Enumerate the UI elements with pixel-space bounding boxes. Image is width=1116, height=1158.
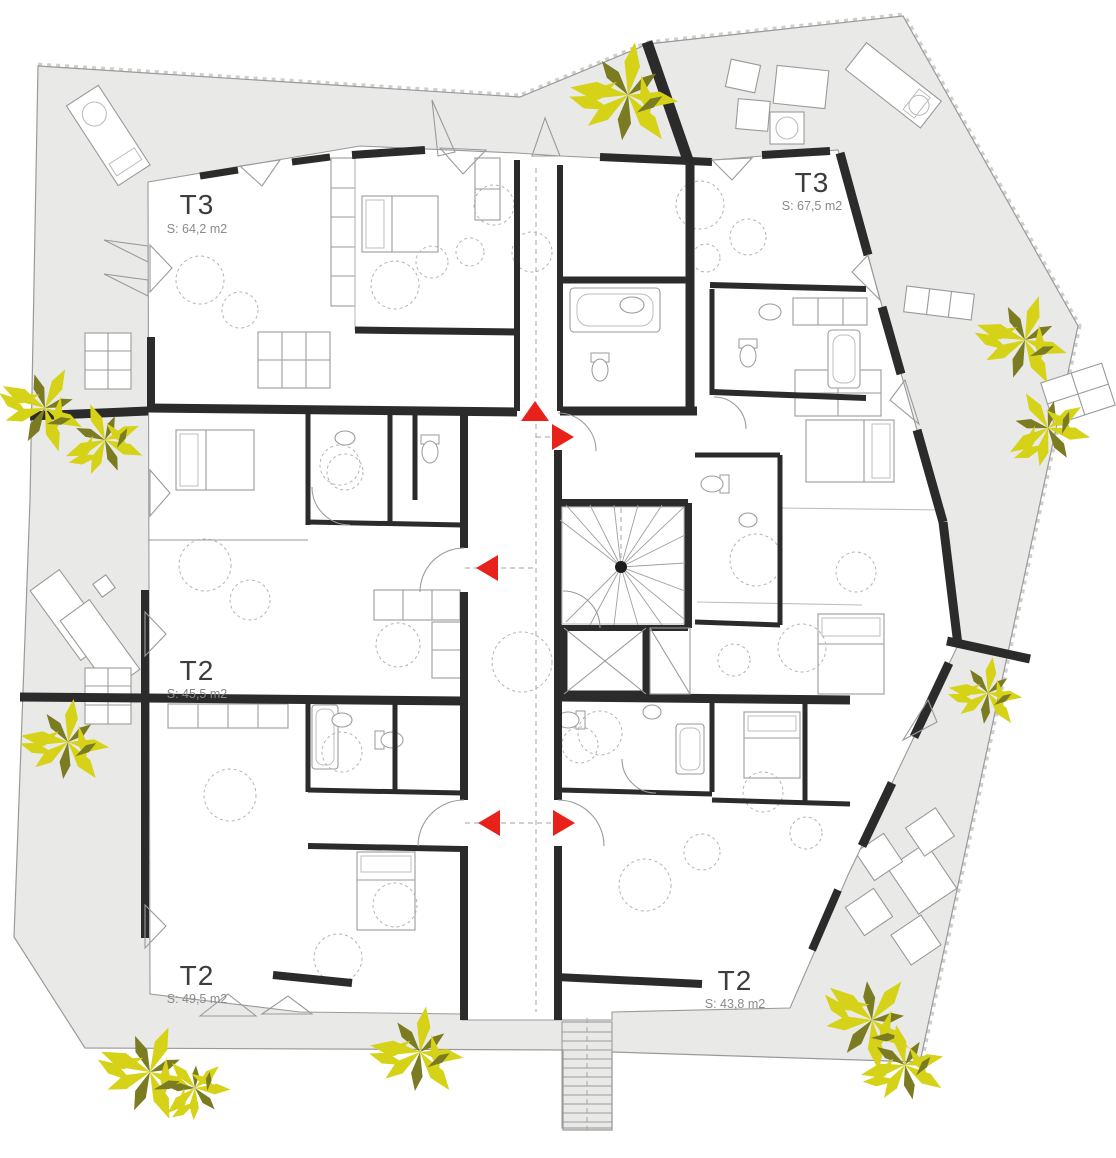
apartment-type-label: T2: [718, 965, 753, 996]
bathtub: [570, 288, 660, 332]
floor-plan-canvas: T3 S: 64,2 m2 T3 S: 67,5 m2 T2 S: 45,5 m…: [0, 0, 1116, 1158]
apartment-area-label: S: 49,5 m2: [167, 992, 227, 1006]
double-bed: [806, 420, 894, 482]
apartment-type-label: T3: [795, 167, 830, 198]
kitchen-counter: [168, 704, 288, 728]
apartment-area-label: S: 43,8 m2: [705, 997, 765, 1011]
terrace-planter: [85, 333, 131, 389]
apartment-area-label: S: 64,2 m2: [167, 222, 227, 236]
apartment-type-label: T2: [180, 960, 215, 991]
double-bed: [818, 614, 884, 694]
wardrobe-shelves: [258, 332, 330, 388]
apartment-area-label: S: 67,5 m2: [782, 199, 842, 213]
terrace-table: [773, 65, 829, 108]
double-bed: [744, 712, 800, 778]
bathtub: [828, 330, 860, 388]
wardrobe-shelves: [475, 158, 500, 220]
toilet: [421, 435, 439, 463]
terrace-chair: [736, 99, 770, 132]
terrace-chair: [725, 59, 760, 93]
toilet: [375, 731, 403, 749]
stair-newel-dot: [615, 561, 627, 573]
terrace-chair: [770, 112, 804, 144]
double-bed: [357, 852, 415, 930]
toilet: [739, 339, 757, 367]
bathtub: [676, 724, 704, 774]
apartment-type-label: T2: [180, 655, 215, 686]
toilet: [701, 475, 729, 493]
building-footprint: [148, 146, 958, 1020]
toilet: [591, 353, 609, 381]
apartment-type-label: T3: [180, 189, 215, 220]
kitchen-counter: [793, 298, 867, 325]
bathtub: [312, 705, 338, 769]
floor-plan: T3 S: 64,2 m2 T3 S: 67,5 m2 T2 S: 45,5 m…: [0, 0, 1116, 1158]
apartment-area-label: S: 45,5 m2: [167, 687, 227, 701]
double-bed: [176, 430, 254, 490]
double-bed: [362, 196, 438, 252]
wardrobe-shelves: [331, 158, 355, 306]
